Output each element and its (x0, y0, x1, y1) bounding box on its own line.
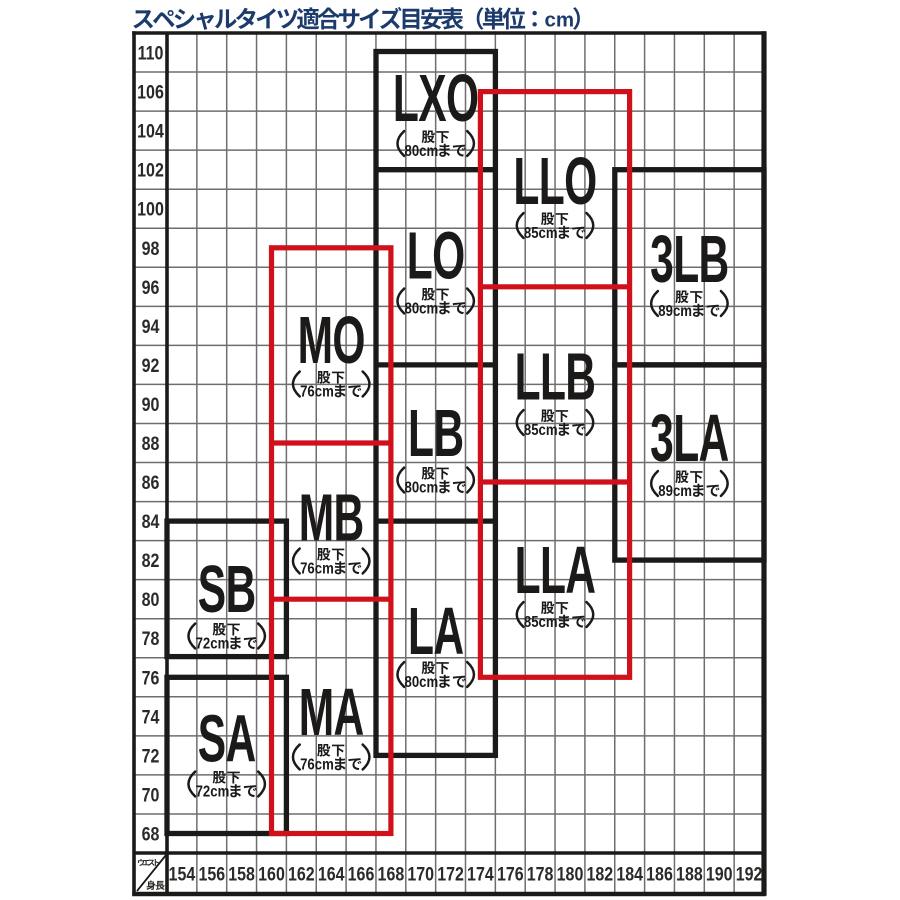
svg-text:102: 102 (137, 159, 164, 181)
svg-text:89cm: 89cm (658, 303, 692, 320)
svg-text:98: 98 (142, 237, 160, 259)
svg-text:156: 156 (198, 863, 225, 885)
svg-text:186: 186 (646, 863, 673, 885)
svg-text:80cm: 80cm (405, 674, 439, 691)
svg-text:192: 192 (736, 863, 763, 885)
svg-text:78: 78 (142, 628, 160, 650)
svg-text:3LB: 3LB (650, 221, 728, 296)
svg-text:104: 104 (137, 120, 164, 142)
svg-text:3LA: 3LA (650, 400, 728, 475)
svg-text:88: 88 (142, 433, 160, 455)
svg-text:76cm: 76cm (300, 561, 334, 578)
svg-text:80: 80 (142, 589, 160, 611)
svg-text:SA: SA (198, 701, 256, 776)
svg-text:168: 168 (378, 863, 405, 885)
svg-text:70: 70 (142, 784, 160, 806)
svg-text:72: 72 (142, 745, 160, 767)
svg-text:72cm: 72cm (196, 784, 230, 801)
svg-text:86: 86 (142, 472, 160, 494)
svg-text:89cm: 89cm (658, 483, 692, 500)
svg-text:160: 160 (258, 863, 285, 885)
svg-text:158: 158 (228, 863, 255, 885)
svg-text:84: 84 (142, 511, 160, 533)
svg-text:SB: SB (198, 551, 256, 626)
svg-text:182: 182 (586, 863, 613, 885)
svg-text:176: 176 (497, 863, 524, 885)
svg-text:188: 188 (676, 863, 703, 885)
svg-text:80cm: 80cm (405, 301, 439, 318)
svg-text:LB: LB (408, 395, 463, 470)
svg-text:LLA: LLA (515, 532, 596, 607)
svg-text:178: 178 (527, 863, 554, 885)
svg-text:MA: MA (299, 674, 364, 749)
svg-text:74: 74 (142, 706, 160, 728)
svg-text:90: 90 (142, 394, 160, 416)
svg-text:MB: MB (299, 480, 364, 555)
svg-text:85cm: 85cm (524, 225, 558, 242)
svg-text:MO: MO (298, 302, 365, 377)
svg-text:85cm: 85cm (524, 614, 558, 631)
svg-text:76cm: 76cm (300, 757, 334, 774)
svg-text:LLB: LLB (515, 339, 596, 414)
svg-text:110: 110 (138, 42, 164, 64)
svg-text:80cm: 80cm (405, 143, 439, 160)
svg-text:cm: cm (545, 9, 575, 32)
svg-text:82: 82 (142, 550, 160, 572)
svg-text:LLO: LLO (513, 143, 596, 218)
svg-text:LO: LO (407, 218, 465, 293)
svg-text:172: 172 (437, 863, 464, 885)
svg-text:76: 76 (142, 667, 160, 689)
svg-text:100: 100 (137, 198, 164, 220)
svg-text:164: 164 (318, 863, 345, 885)
svg-text:72cm: 72cm (196, 636, 230, 653)
svg-text:190: 190 (706, 863, 733, 885)
svg-text:184: 184 (616, 863, 643, 885)
svg-text:92: 92 (142, 354, 160, 376)
svg-text:68: 68 (142, 823, 160, 845)
svg-text:180: 180 (557, 863, 584, 885)
svg-text:96: 96 (142, 276, 160, 298)
svg-text:LXO: LXO (393, 60, 479, 135)
svg-text:174: 174 (467, 863, 494, 885)
svg-text:76cm: 76cm (300, 384, 334, 401)
svg-text:166: 166 (348, 863, 375, 885)
svg-text:106: 106 (137, 81, 164, 103)
svg-text:162: 162 (288, 863, 315, 885)
svg-text:154: 154 (169, 863, 196, 885)
svg-text:94: 94 (142, 315, 160, 337)
svg-text:85cm: 85cm (524, 422, 558, 439)
svg-text:170: 170 (407, 863, 434, 885)
svg-text:LA: LA (408, 593, 463, 668)
svg-text:80cm: 80cm (405, 480, 439, 497)
